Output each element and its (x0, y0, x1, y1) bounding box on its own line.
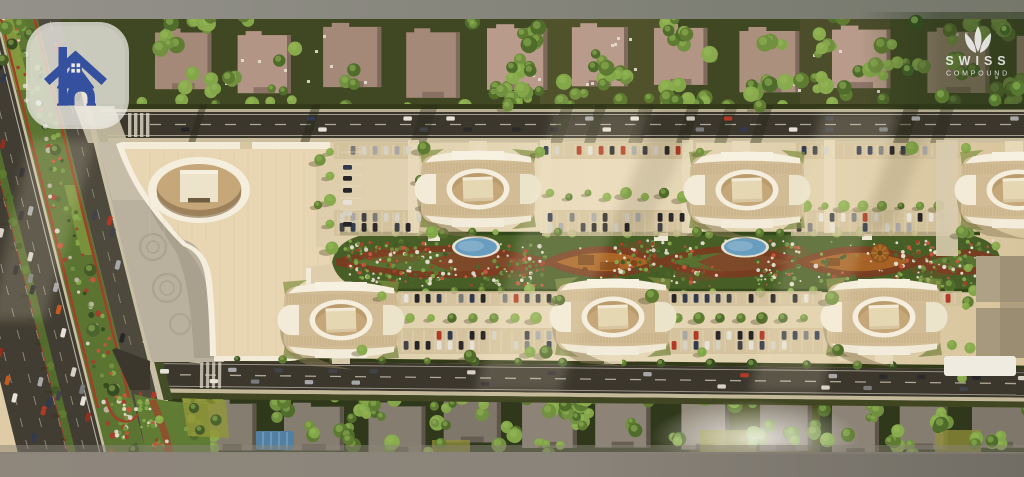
svg-text:SWISS: SWISS (945, 54, 1010, 68)
svg-text:COMPOUND: COMPOUND (946, 71, 1010, 78)
